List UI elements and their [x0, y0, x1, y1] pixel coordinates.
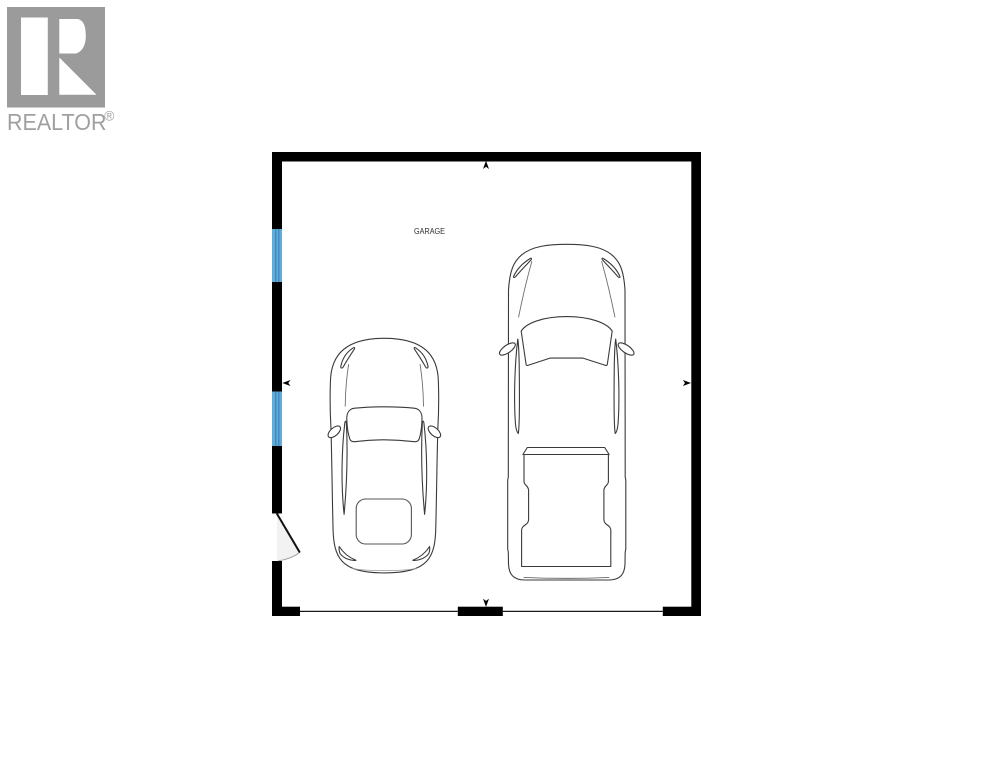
- svg-text:REALTOR: REALTOR: [7, 109, 107, 135]
- svg-text:®: ®: [104, 109, 114, 124]
- svg-text:GARAGE: GARAGE: [414, 227, 445, 236]
